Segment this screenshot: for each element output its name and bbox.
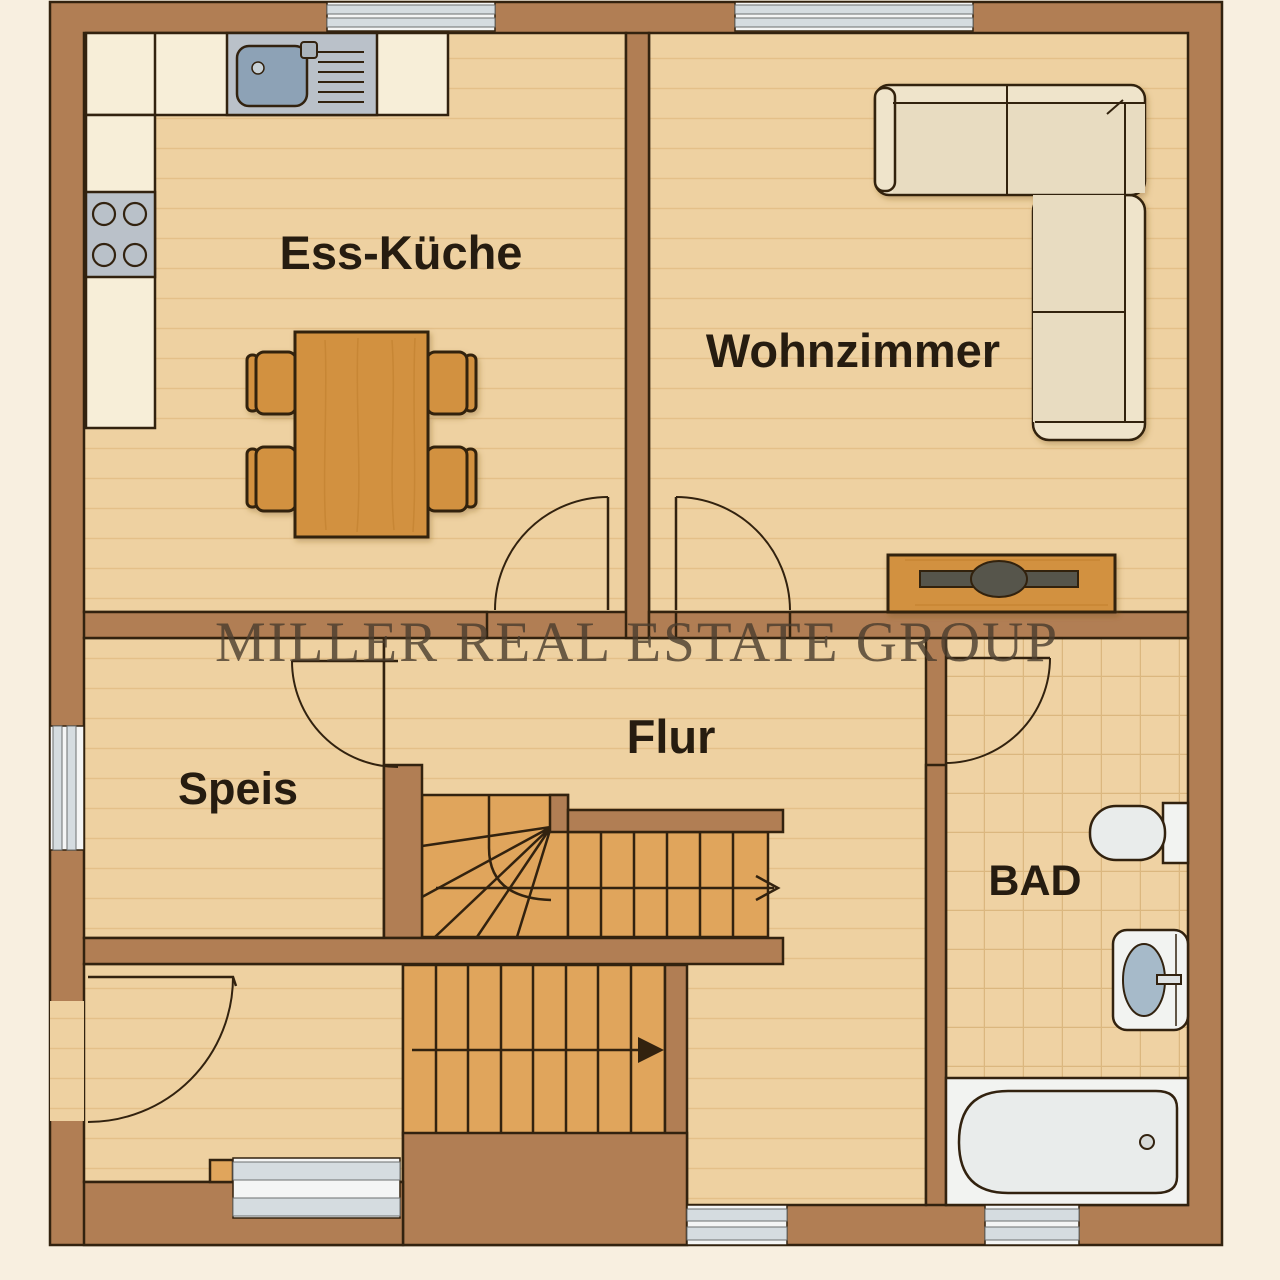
- chair: [427, 352, 476, 414]
- bathtub: [946, 1078, 1188, 1205]
- label-kitchen: Ess-Küche: [280, 226, 523, 279]
- sink-faucet-icon: [301, 42, 317, 58]
- window-bathroom-bottom: [985, 1205, 1079, 1245]
- floor-plan-drawing: Ess-Küche Wohnzimmer Flur Speis BAD MILL…: [0, 0, 1280, 1280]
- floor-plan: Ess-Küche Wohnzimmer Flur Speis BAD MILL…: [0, 0, 1280, 1280]
- washbasin: [1113, 930, 1188, 1030]
- vestibule-floor: [84, 964, 403, 1182]
- kitchen-sink: [227, 33, 377, 115]
- window-vestibule-bottom: [210, 1158, 400, 1218]
- burner-icon: [93, 203, 115, 225]
- burner-icon: [124, 244, 146, 266]
- label-bathroom: BAD: [988, 857, 1081, 905]
- chair: [247, 352, 296, 414]
- label-hallway: Flur: [627, 710, 716, 763]
- chair: [427, 447, 476, 511]
- burner-icon: [124, 203, 146, 225]
- window-hallway-bottom: [687, 1205, 787, 1245]
- burner-icon: [93, 244, 115, 266]
- window-kitchen-top: [327, 2, 495, 31]
- basin-faucet-icon: [1157, 975, 1181, 984]
- dining-table: [295, 332, 428, 537]
- tv-lowboard: [888, 555, 1115, 612]
- wall-above-upper-flight: [568, 810, 783, 832]
- wall-pantry-stairwell: [384, 765, 422, 938]
- wall-stair-block: [550, 795, 568, 832]
- sink-drain-icon: [252, 62, 264, 74]
- wall-kitchen-living-divider: [626, 33, 649, 638]
- tv-base-icon: [971, 561, 1027, 597]
- watermark-text: MILLER REAL ESTATE GROUP: [215, 611, 1059, 674]
- staircase-lower: [403, 965, 665, 1135]
- label-pantry: Speis: [178, 763, 298, 814]
- tub-drain-icon: [1140, 1135, 1154, 1149]
- window-pantry-left: [50, 726, 84, 850]
- chair: [247, 447, 296, 511]
- stove: [86, 192, 155, 277]
- wall-below-lower-flight: [403, 1133, 687, 1245]
- entrance-opening: [50, 1001, 84, 1121]
- sofa-armrest: [875, 88, 895, 191]
- toilet: [1090, 803, 1188, 863]
- wall-stair-band: [84, 938, 783, 964]
- label-living-room: Wohnzimmer: [706, 324, 1000, 377]
- window-living-top: [735, 2, 973, 31]
- wall-bathroom-left: [926, 765, 946, 1205]
